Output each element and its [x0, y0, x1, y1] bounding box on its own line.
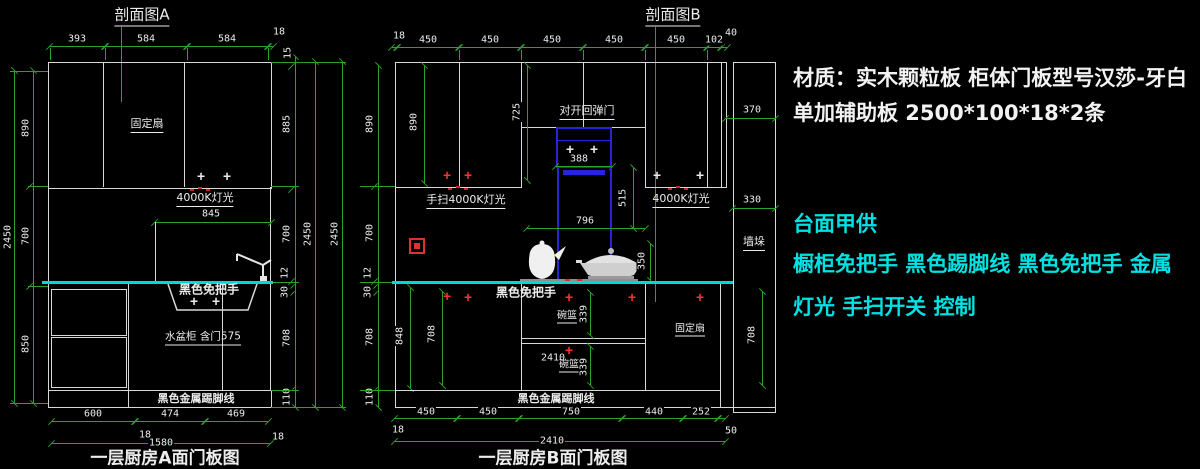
- sink-cabinet-label: 水盆柜 含门575: [165, 329, 241, 346]
- dim-text: 370: [742, 105, 762, 116]
- dim-text: 469: [226, 409, 246, 420]
- dim-text: 330: [742, 195, 762, 206]
- ext-line: [273, 282, 299, 283]
- light-label: 4000K灯光: [652, 190, 709, 208]
- dim-line-845: [155, 222, 271, 223]
- dim-text: 600: [83, 409, 103, 420]
- ext-line: [271, 62, 346, 63]
- dim-line: [521, 47, 583, 48]
- dim-line: [135, 421, 205, 422]
- dim-line-350: [650, 244, 651, 280]
- dim-text: 18: [392, 31, 406, 42]
- dim-line-330: [733, 208, 775, 209]
- counter-note: 台面甲供: [793, 208, 877, 238]
- door-divider: [222, 284, 223, 390]
- dim-line: [397, 47, 459, 48]
- dim-text: 450: [604, 35, 624, 46]
- ext-line: [645, 50, 646, 60]
- dim-text: 725: [512, 102, 523, 122]
- dim-line-708: [762, 292, 763, 385]
- dim-tick: [288, 63, 295, 70]
- dim-tick: [288, 186, 295, 193]
- ext-line: [28, 186, 48, 187]
- dim-text: 708: [747, 325, 758, 345]
- dim-text: 708: [427, 324, 438, 344]
- dim-text: 393: [67, 34, 87, 45]
- dim-line: [187, 46, 268, 47]
- toe-kick-divider: [128, 390, 129, 406]
- dim-text: 700: [282, 224, 293, 244]
- dim-text: 890: [409, 112, 420, 132]
- ext-line: [360, 282, 392, 283]
- door-divider: [707, 62, 708, 187]
- dim-line-2450: [342, 62, 343, 407]
- dim-text: 450: [478, 407, 498, 418]
- handle-mark: +: [197, 170, 205, 185]
- handle-mark: +: [464, 169, 472, 184]
- dim-text: 848: [395, 326, 406, 346]
- dim-text: 18: [391, 425, 405, 436]
- dim-text: 450: [542, 35, 562, 46]
- ext-line: [268, 48, 269, 60]
- hand-light-label: 手扫4000K灯光: [426, 191, 505, 209]
- dim-line: [424, 66, 425, 183]
- base-side: [720, 284, 721, 390]
- fixed-panel-label: 固定扇: [131, 115, 164, 133]
- niche-side: [155, 222, 156, 282]
- light-dash: [448, 188, 452, 190]
- light-dash: [676, 186, 680, 188]
- dim-line-708: [442, 292, 443, 385]
- dim-text: 708: [282, 328, 293, 348]
- dim-text: 2450: [330, 221, 341, 247]
- dim-text: 102: [704, 35, 724, 46]
- section-cut-line: [655, 26, 656, 302]
- base-divider: [645, 284, 646, 390]
- handle-free-label: 黑色免把手: [496, 284, 556, 301]
- drawer-front: [51, 337, 127, 388]
- spring-door-label: 对开回弹门: [560, 102, 615, 120]
- dim-line: [718, 418, 725, 419]
- handle-mark: +: [628, 291, 636, 306]
- section-label-a: 剖面图A: [114, 4, 169, 27]
- toe-kick-label: 黑色金属踢脚线: [518, 390, 595, 406]
- light-label: 4000K灯光: [176, 189, 233, 207]
- dim-line: [519, 418, 622, 419]
- dim-text: 30: [363, 285, 374, 299]
- dim-text: 339: [579, 357, 590, 377]
- dim-line: [105, 46, 187, 47]
- dim-line: [622, 418, 683, 419]
- base-divider: [128, 284, 129, 407]
- dim-line-2450: [14, 71, 15, 403]
- door-divider: [103, 62, 104, 187]
- dim-text: 845: [201, 209, 221, 220]
- dim-text: 2450: [303, 221, 314, 247]
- basket-label: 碗篮: [557, 307, 577, 324]
- material-note-line2: 单加辅助板 2500*100*18*2条: [793, 97, 1105, 127]
- ext-line: [271, 186, 299, 187]
- fixed-panel-label: 固定扇: [675, 320, 705, 337]
- dim-text: 12: [363, 266, 374, 280]
- drawer-front: [51, 289, 127, 336]
- dim-line-370: [726, 118, 775, 119]
- dim-line: [50, 46, 105, 47]
- ext-line: [459, 50, 460, 60]
- ext-line: [10, 403, 48, 404]
- material-note-line1: 材质：实木颗粒板 柜体门板型号汉莎-牙白: [793, 62, 1187, 92]
- pier-label: 墙垛: [743, 233, 765, 251]
- dim-text: 584: [136, 34, 156, 45]
- dim-line: [295, 57, 296, 407]
- view-b-title: 一层厨房B面门板图: [479, 444, 628, 469]
- dim-text: 450: [418, 35, 438, 46]
- section-label-b: 剖面图B: [645, 4, 700, 27]
- drawer-divider: [521, 338, 645, 339]
- countertop-b: [392, 281, 733, 284]
- kettle-icon: [515, 238, 570, 283]
- handle-mark: +: [565, 291, 573, 306]
- ext-line: [187, 48, 188, 60]
- handle-mark: +: [653, 169, 661, 184]
- cad-canvas: 剖面图A 393 584 584 18 固定扇 + + 4000K灯光 845: [0, 0, 1200, 469]
- cabinet-side: [48, 187, 49, 390]
- ext-line: [10, 71, 48, 72]
- pier-side: [775, 62, 776, 413]
- dim-line: [395, 418, 457, 419]
- ext-line: [271, 390, 299, 391]
- drawer-divider: [521, 343, 645, 344]
- dim-text: 50: [724, 426, 738, 437]
- dim-line: [268, 46, 273, 47]
- dim-text: 796: [575, 216, 595, 227]
- dim-line-848: [410, 288, 411, 388]
- dim-text: 450: [416, 407, 436, 418]
- dim-line: [683, 418, 718, 419]
- dim-line-339: [590, 347, 591, 385]
- handle-mark: +: [223, 170, 231, 185]
- dim-line-515: [633, 168, 634, 228]
- hood-vent-bar: [563, 170, 605, 175]
- dim-text: 350: [637, 251, 648, 271]
- door-divider: [645, 62, 646, 187]
- dim-text: 885: [282, 114, 293, 134]
- pier-side: [733, 62, 734, 413]
- cabinet-top: [395, 62, 726, 63]
- dim-text: 2450: [3, 224, 14, 250]
- dim-line: [459, 47, 521, 48]
- dim-line: [33, 71, 34, 403]
- dim-text: 850: [21, 334, 32, 354]
- handle-mark: +: [190, 295, 198, 310]
- pier-bottom: [733, 412, 776, 413]
- view-a-title: 一层厨房A面门板图: [90, 444, 239, 469]
- handle-mark: +: [590, 143, 598, 158]
- dim-text: 890: [21, 118, 32, 138]
- handle-mark: +: [464, 291, 472, 306]
- dim-text: 15: [283, 46, 294, 60]
- door-divider: [521, 62, 522, 187]
- dim-text: 515: [618, 188, 629, 208]
- cabinet-side: [270, 187, 271, 390]
- dim-text: 30: [280, 285, 291, 299]
- door-divider: [459, 62, 460, 187]
- dim-line: [721, 47, 727, 48]
- dim-line: [457, 418, 519, 419]
- door-divider: [184, 62, 185, 187]
- handle-mark: +: [443, 169, 451, 184]
- wok-icon: [576, 245, 646, 283]
- dim-text: 339: [579, 304, 590, 324]
- dim-text: 450: [480, 35, 500, 46]
- dim-text: 750: [561, 407, 581, 418]
- ext-line: [583, 50, 584, 60]
- dim-text: 584: [217, 34, 237, 45]
- light-dash: [456, 186, 460, 188]
- dim-line-339: [590, 293, 591, 335]
- door-divider: [721, 62, 722, 187]
- basket-label: 碗篮: [559, 356, 579, 373]
- dim-line: [583, 47, 645, 48]
- ext-line: [271, 407, 346, 408]
- dim-text: 700: [365, 223, 376, 243]
- dim-line: [52, 421, 135, 422]
- dim-text: 440: [644, 407, 664, 418]
- dim-line: [527, 66, 528, 180]
- hood-line: [558, 140, 610, 141]
- handle-mark: +: [696, 291, 704, 306]
- faucet-icon: [225, 248, 275, 284]
- ext-line: [360, 390, 395, 391]
- handle-mark: +: [212, 295, 220, 310]
- finish-note-line1: 橱柜免把手 黑色踢脚线 黑色免把手 金属: [793, 248, 1172, 278]
- light-dash: [464, 188, 468, 190]
- dim-text: 474: [160, 409, 180, 420]
- dim-line: [645, 47, 707, 48]
- dim-text: 12: [280, 266, 291, 280]
- dim-text: 700: [21, 226, 32, 246]
- ext-line: [28, 286, 48, 287]
- finish-note-line2: 灯光 手扫开关 控制: [793, 291, 976, 321]
- toe-kick-label: 黑色金属踢脚线: [158, 390, 235, 406]
- dim-text: 252: [691, 407, 711, 418]
- dim-text: 40: [724, 28, 738, 39]
- ext-line: [707, 50, 708, 60]
- dim-line-388: [556, 166, 612, 167]
- ext-line: [521, 50, 522, 60]
- dim-text: 388: [569, 154, 589, 165]
- handle-free-label: 黑色免把手: [179, 281, 239, 298]
- ext-line: [50, 48, 51, 60]
- socket-icon: [409, 238, 425, 254]
- dim-line-796: [527, 228, 645, 229]
- dim-text: 450: [666, 35, 686, 46]
- pier-top: [733, 62, 776, 63]
- handle-mark: +: [696, 169, 704, 184]
- dim-line: [378, 66, 379, 407]
- dim-text: 708: [365, 327, 376, 347]
- cabinet-side: [726, 62, 727, 187]
- floor-line: [395, 407, 776, 408]
- dim-line: [205, 421, 268, 422]
- ext-line: [105, 48, 106, 60]
- dim-text: 18: [272, 27, 286, 38]
- ext-line: [360, 186, 395, 187]
- handle-mark: +: [443, 290, 451, 305]
- dim-text: 890: [365, 114, 376, 134]
- dim-line-2450: [315, 62, 316, 407]
